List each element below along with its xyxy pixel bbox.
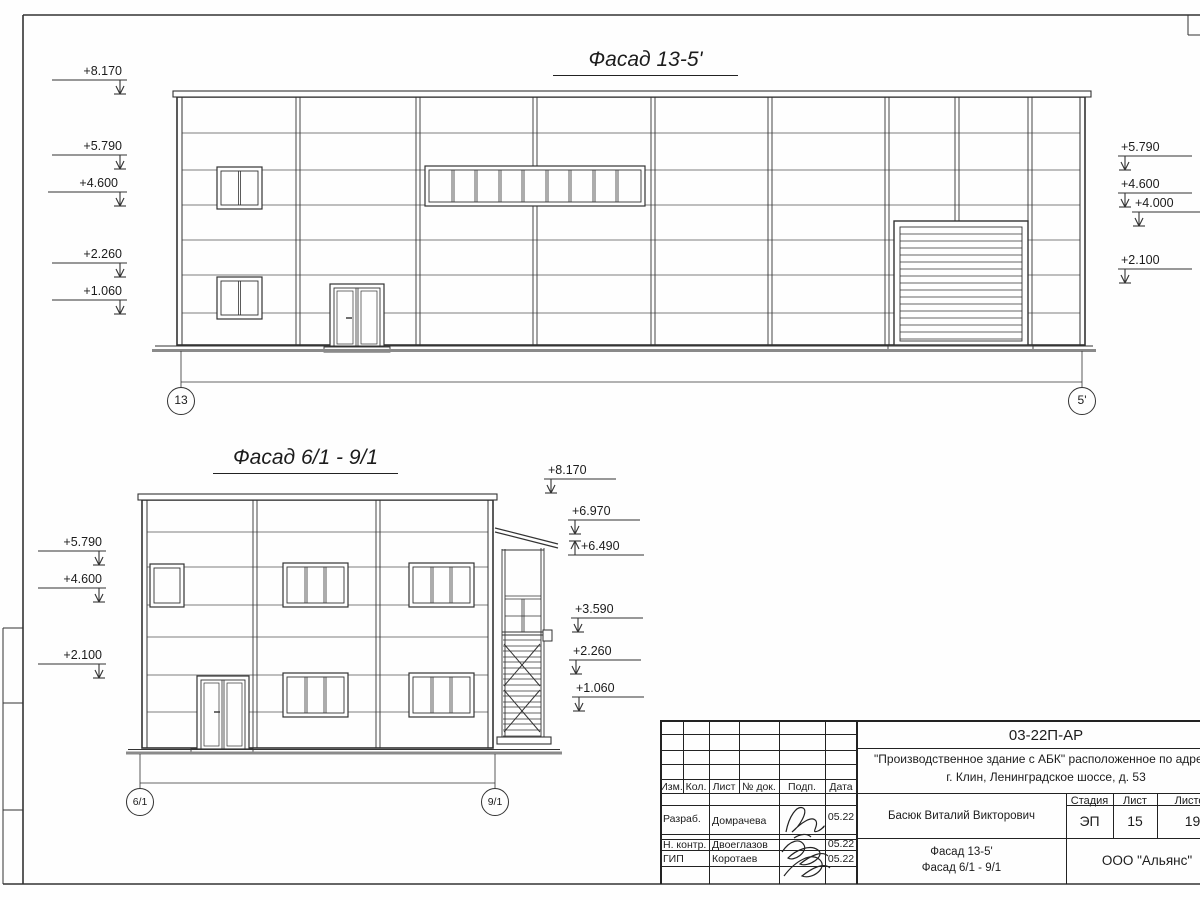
stage-label: Стадия bbox=[1066, 795, 1113, 808]
elevation-mark: +1.060 bbox=[50, 284, 122, 298]
facade-13-5-drawing bbox=[48, 80, 1200, 415]
elevation-mark: +2.100 bbox=[30, 648, 102, 662]
sheet-number: 15 bbox=[1113, 813, 1157, 829]
facade2-title: Фасад 6/1 - 9/1 bbox=[213, 446, 398, 474]
project-name-line1: "Производственное здание с АБК" располож… bbox=[857, 753, 1200, 767]
elevation-mark: +4.600 bbox=[30, 572, 102, 586]
elevation-mark: +5.790 bbox=[50, 139, 122, 153]
elevation-mark: +5.790 bbox=[30, 535, 102, 549]
col-izm: Изм. bbox=[660, 781, 683, 793]
elevation-mark: +1.060 bbox=[576, 681, 648, 695]
axis-label-5s: 5' bbox=[1067, 394, 1097, 408]
elevation-mark: +2.260 bbox=[573, 644, 645, 658]
window-square bbox=[150, 564, 184, 607]
col-kol: Кол. bbox=[683, 781, 709, 793]
axis-label-13: 13 bbox=[166, 394, 196, 408]
drawing-sheet: { "facades": { "f1": { "title": "Фасад 1… bbox=[0, 0, 1200, 900]
client-name: Басюк Виталий Викторович bbox=[857, 810, 1066, 823]
axis-label-61: 6/1 bbox=[124, 796, 156, 808]
window-3pane-upper-mid bbox=[283, 563, 348, 607]
window-3pane-upper-right bbox=[409, 563, 474, 607]
facade-61-91-drawing bbox=[38, 479, 644, 816]
drawing-title-line1: Фасад 13-5' bbox=[857, 846, 1066, 859]
elevation-mark: +4.600 bbox=[46, 176, 118, 190]
elevation-mark: +5.790 bbox=[1121, 140, 1193, 154]
elevation-mark: +2.260 bbox=[50, 247, 122, 261]
window-small-upper bbox=[217, 167, 262, 209]
elevation-mark: +4.000 bbox=[1135, 196, 1200, 210]
sheets-total: 19 bbox=[1157, 813, 1200, 829]
garage-door bbox=[888, 221, 1033, 350]
elevation-mark: +8.170 bbox=[50, 64, 122, 78]
staff-date: 05.22 bbox=[825, 853, 857, 865]
sheets-label: Листов bbox=[1157, 795, 1200, 808]
signature-lower bbox=[782, 841, 830, 877]
col-data: Дата bbox=[825, 781, 857, 793]
facade1-title: Фасад 13-5' bbox=[553, 48, 738, 76]
staff-name: Коротаев bbox=[712, 853, 757, 865]
staff-role: Н. контр. bbox=[663, 839, 706, 851]
elevation-mark: +6.970 bbox=[572, 504, 644, 518]
staff-name: Домрачева bbox=[712, 815, 766, 827]
sheet-label: Лист bbox=[1113, 795, 1157, 808]
project-name-line2: г. Клин, Ленинградское шоссе, д. 53 bbox=[857, 771, 1200, 785]
staff-date: 05.22 bbox=[825, 811, 857, 823]
elevation-mark: +4.600 bbox=[1121, 177, 1193, 191]
window-3pane-lower-mid bbox=[283, 673, 348, 717]
staff-role: Разраб. bbox=[663, 813, 701, 825]
col-list: Лист bbox=[709, 781, 739, 793]
ribbon-window bbox=[425, 166, 645, 206]
col-ndok: № док. bbox=[739, 781, 779, 793]
stage-value: ЭП bbox=[1066, 813, 1113, 829]
entrance-door-f1 bbox=[324, 284, 390, 352]
axis-label-91: 9/1 bbox=[479, 796, 511, 808]
stair-tower bbox=[495, 528, 558, 744]
doc-code: 03-22П-АР bbox=[857, 727, 1200, 744]
staff-name: Двоеглазов bbox=[712, 839, 768, 851]
elevation-mark: +6.490 bbox=[581, 539, 653, 553]
staff-date: 05.22 bbox=[825, 838, 857, 850]
window-3pane-lower-right bbox=[409, 673, 474, 717]
drawing-title-line2: Фасад 6/1 - 9/1 bbox=[857, 862, 1066, 875]
company-name: ООО "Альянс" bbox=[1066, 853, 1200, 869]
staff-role: ГИП bbox=[663, 853, 684, 865]
elevation-mark: +8.170 bbox=[548, 463, 620, 477]
elevation-mark: +2.100 bbox=[1121, 253, 1193, 267]
col-podp: Подп. bbox=[779, 781, 825, 793]
window-small-lower bbox=[217, 277, 262, 319]
elevation-mark: +3.590 bbox=[575, 602, 647, 616]
entrance-door-f2 bbox=[191, 676, 253, 753]
